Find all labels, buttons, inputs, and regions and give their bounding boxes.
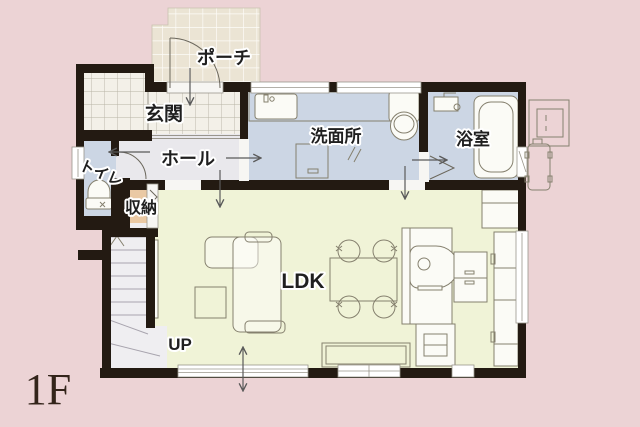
stairs-up-label: UP — [168, 335, 192, 354]
refrigerator — [482, 190, 519, 228]
washroom-door-opening — [239, 139, 249, 181]
entrance-label: 玄関 — [145, 102, 183, 125]
porch-label: ポーチ — [197, 47, 251, 68]
entrance-floor-upper — [80, 70, 152, 134]
porch-floor — [152, 8, 260, 84]
outdoor-equipment — [525, 100, 569, 190]
front-door-threshold — [167, 82, 223, 93]
stove-cart — [454, 252, 487, 302]
washroom-ldk-opening — [389, 180, 425, 190]
floor-plan-canvas: ポーチ 玄関 ホール トイレ 収納 洗面所 浴室 LDK UP 1F — [0, 0, 640, 427]
kitchen-lower-cabinet — [416, 324, 455, 366]
floor-label: 1F — [25, 365, 71, 414]
ldk-window-3 — [452, 365, 474, 377]
washroom-label: 洗面所 — [311, 126, 362, 146]
pantry-cabinet — [491, 232, 518, 366]
hall-ldk-opening — [165, 180, 201, 190]
washing-machine — [389, 91, 419, 140]
kitchen-island-sink — [402, 228, 458, 324]
hall-label: ホール — [161, 149, 215, 169]
water-heater — [525, 139, 552, 190]
bathroom-label: 浴室 — [456, 129, 490, 149]
ldk-label: LDK — [281, 270, 324, 293]
storage-label: 収納 — [125, 198, 157, 217]
stair-landing-floor — [147, 326, 167, 370]
bathroom-door-opening — [419, 152, 429, 182]
floor-plan-svg: ポーチ 玄関 ホール トイレ 収納 洗面所 浴室 LDK UP 1F — [0, 0, 640, 427]
